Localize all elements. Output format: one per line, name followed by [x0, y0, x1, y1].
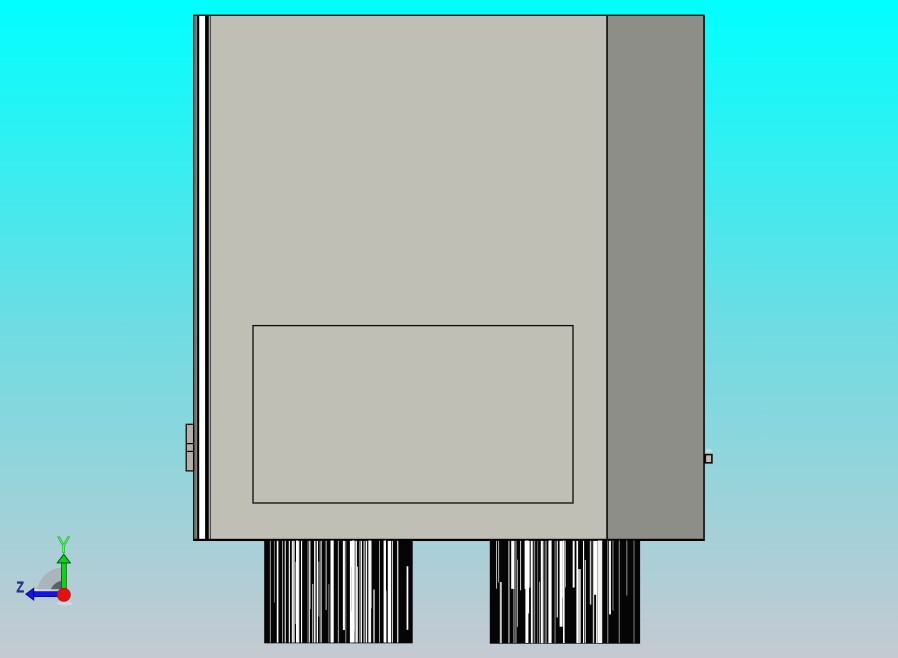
svg-text:Y: Y	[57, 533, 70, 558]
svg-text:Z: Z	[17, 580, 24, 596]
